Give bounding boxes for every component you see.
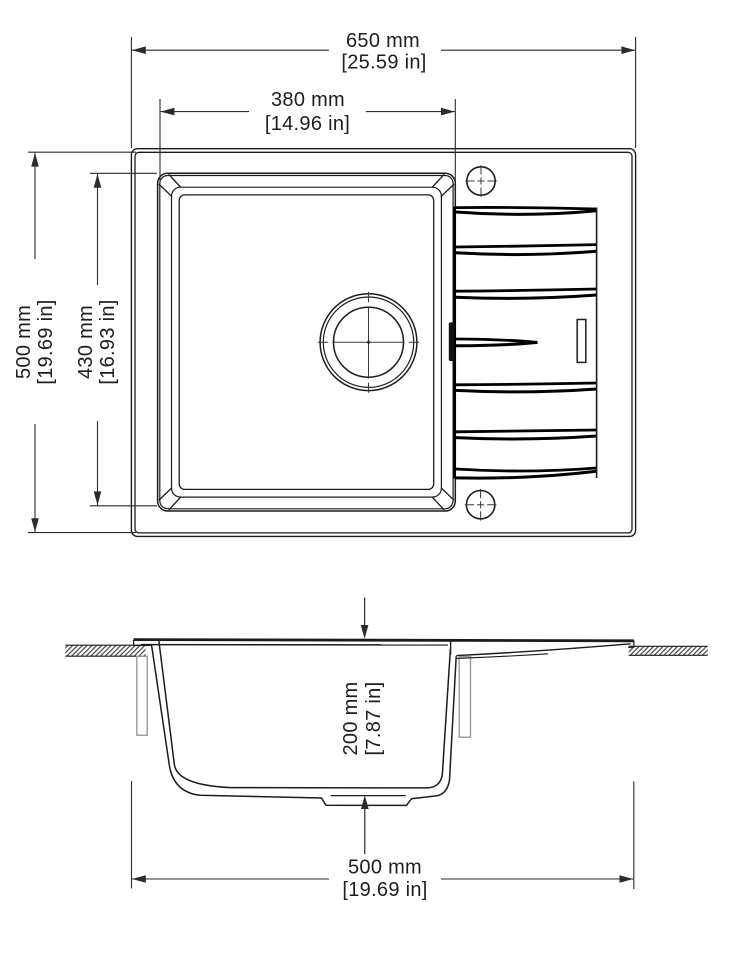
svg-text:650 mm: 650 mm	[346, 30, 420, 52]
svg-text:[19.69 in]: [19.69 in]	[35, 299, 57, 384]
svg-text:200 mm: 200 mm	[340, 681, 362, 755]
svg-text:[7.87 in]: [7.87 in]	[363, 682, 385, 756]
svg-text:[16.93 in]: [16.93 in]	[97, 299, 119, 384]
svg-text:[14.96 in]: [14.96 in]	[265, 113, 350, 135]
svg-text:430 mm: 430 mm	[75, 305, 97, 379]
svg-text:380 mm: 380 mm	[271, 89, 345, 111]
svg-text:500 mm: 500 mm	[348, 857, 422, 879]
svg-text:[19.69 in]: [19.69 in]	[342, 879, 427, 901]
svg-text:[25.59 in]: [25.59 in]	[341, 52, 426, 74]
svg-text:500 mm: 500 mm	[13, 305, 35, 379]
